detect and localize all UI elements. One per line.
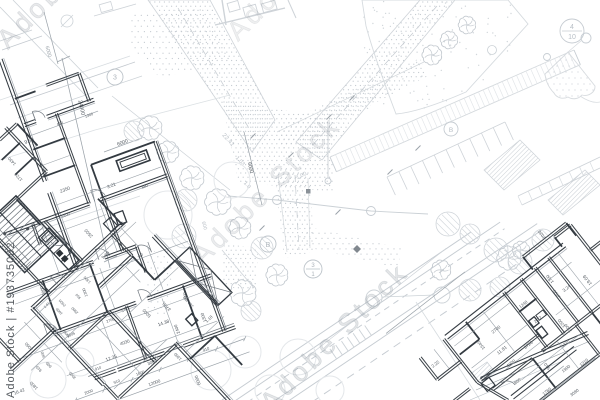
svg-text:4: 4	[570, 24, 574, 31]
svg-text:10: 10	[568, 34, 576, 41]
svg-text:3: 3	[113, 75, 117, 82]
svg-text:B: B	[449, 127, 453, 134]
svg-text:Adobe Stock | #193735002: Adobe Stock | #193735002	[5, 241, 17, 398]
